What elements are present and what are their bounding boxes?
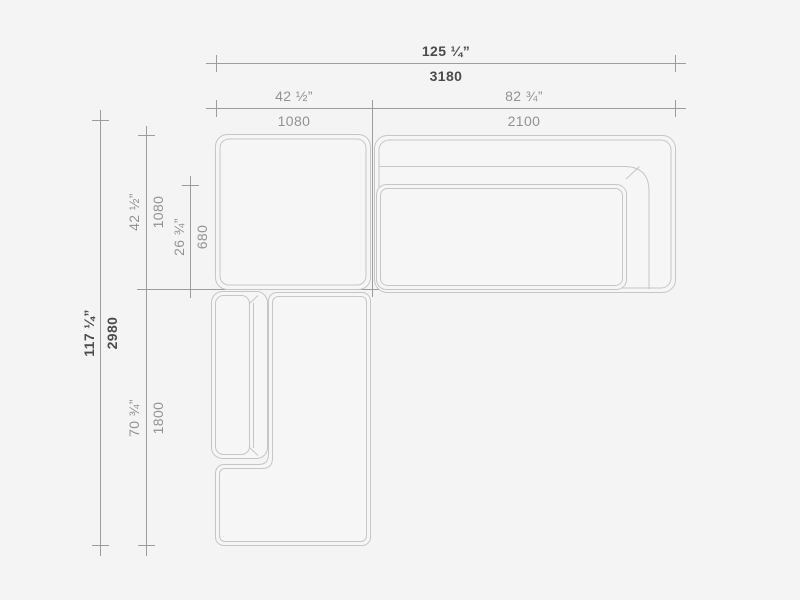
corner-width-inches-label: 42 ½” — [275, 89, 313, 103]
sofa-outlines — [212, 135, 676, 546]
seat-depth-inches-label: 26 ¾” — [172, 218, 186, 256]
corner-module-outline — [216, 135, 371, 290]
corner-width-mm-label: 1080 — [278, 114, 311, 128]
sofa-width-inches-label: 82 ¾” — [505, 89, 543, 103]
chaise-length-mm-label: 1800 — [151, 402, 165, 435]
overall-width-inches-label: 125 ¼” — [422, 44, 470, 58]
sofa-seat-cushion — [377, 185, 627, 290]
overall-width-mm-label: 3180 — [430, 69, 463, 83]
sofa-plan-technical-drawing: 125 ¼” 3180 42 ½” 1080 82 ¾” 2100 117 ¼”… — [0, 0, 800, 600]
overall-depth-mm-label: 2980 — [105, 317, 119, 350]
sofa-width-mm-label: 2100 — [508, 114, 541, 128]
chaise-armrest-outline — [212, 292, 268, 459]
chaise-length-inches-label: 70 ¾” — [127, 399, 141, 437]
corner-depth-inches-label: 42 ½” — [127, 193, 141, 231]
dimension-lines — [92, 55, 686, 556]
overall-depth-inches-label: 117 ¼” — [82, 309, 96, 357]
drawing-geometry — [0, 0, 800, 600]
seat-depth-mm-label: 680 — [195, 225, 209, 250]
corner-depth-mm-label: 1080 — [151, 196, 165, 229]
